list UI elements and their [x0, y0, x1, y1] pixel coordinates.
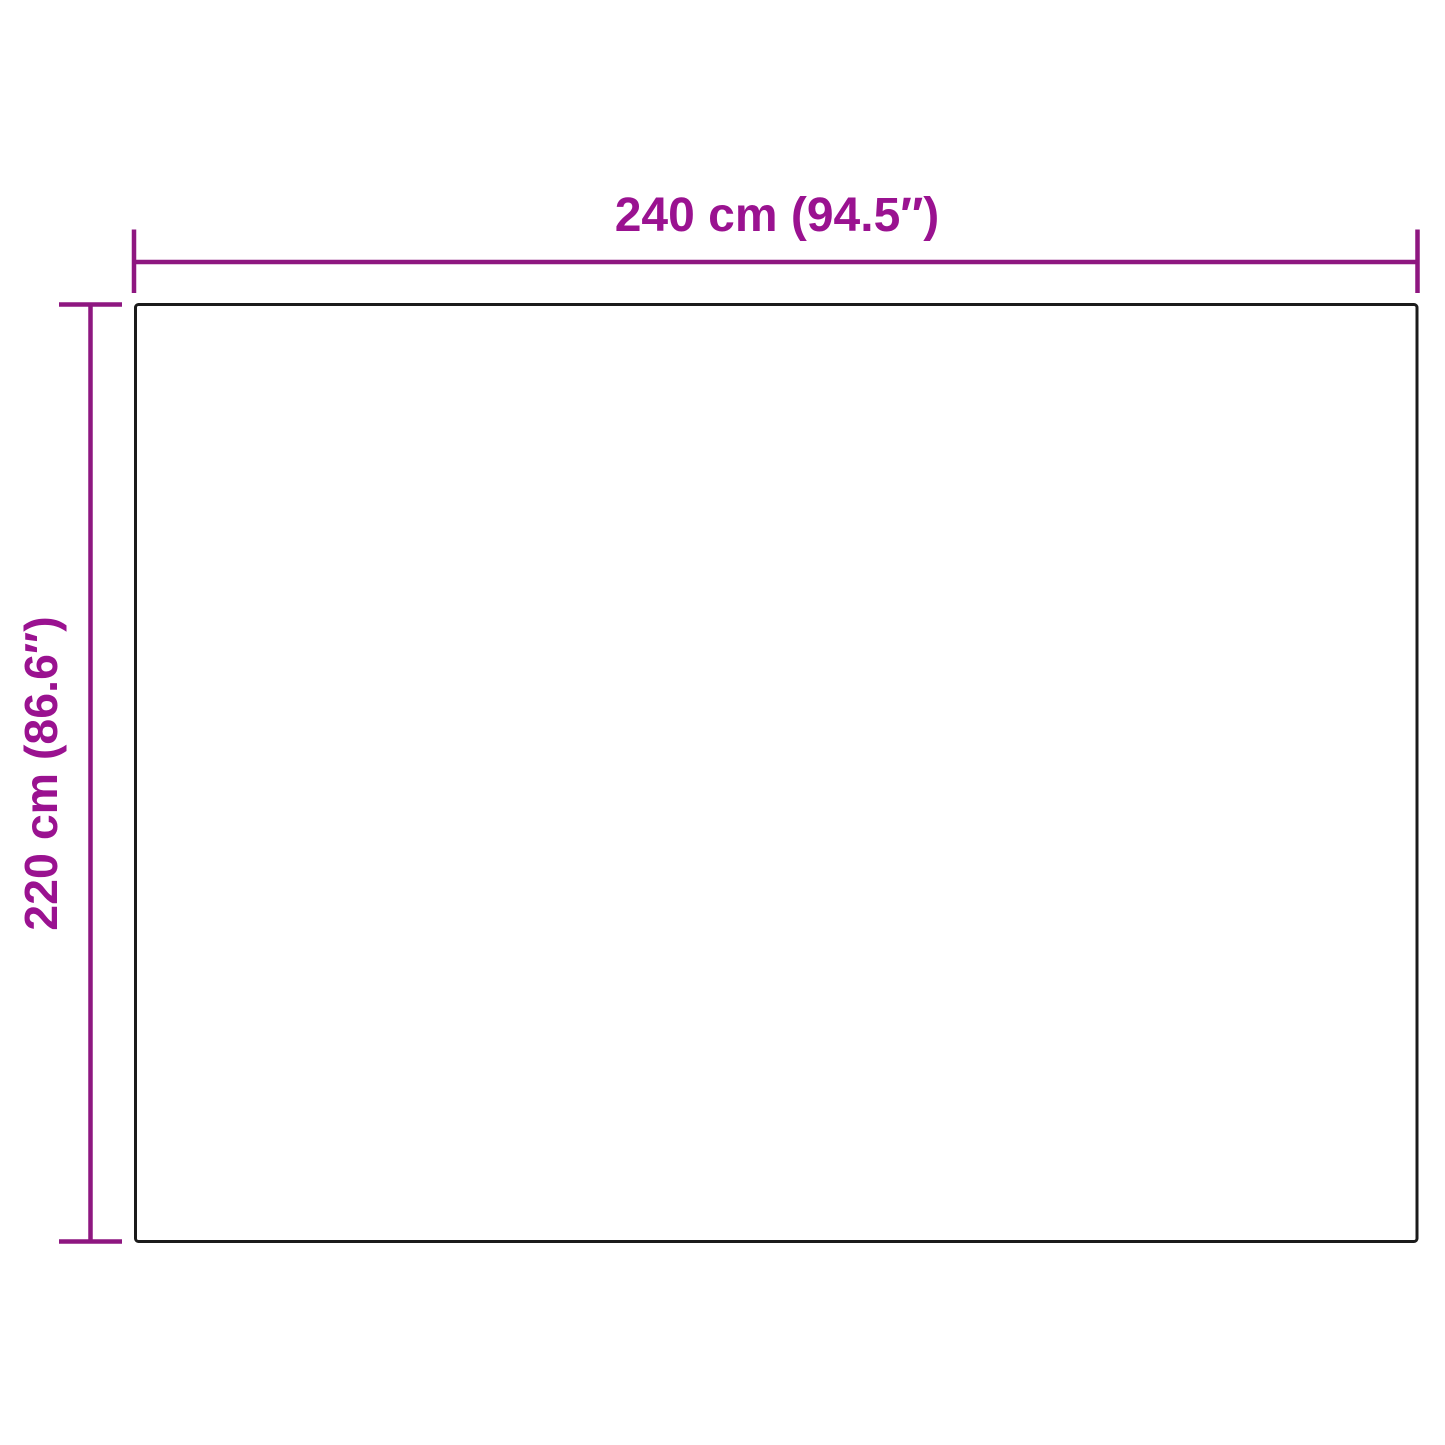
- svg-text:220 cm (86.6″): 220 cm (86.6″): [15, 616, 67, 930]
- svg-text:240 cm (94.5″): 240 cm (94.5″): [615, 189, 940, 242]
